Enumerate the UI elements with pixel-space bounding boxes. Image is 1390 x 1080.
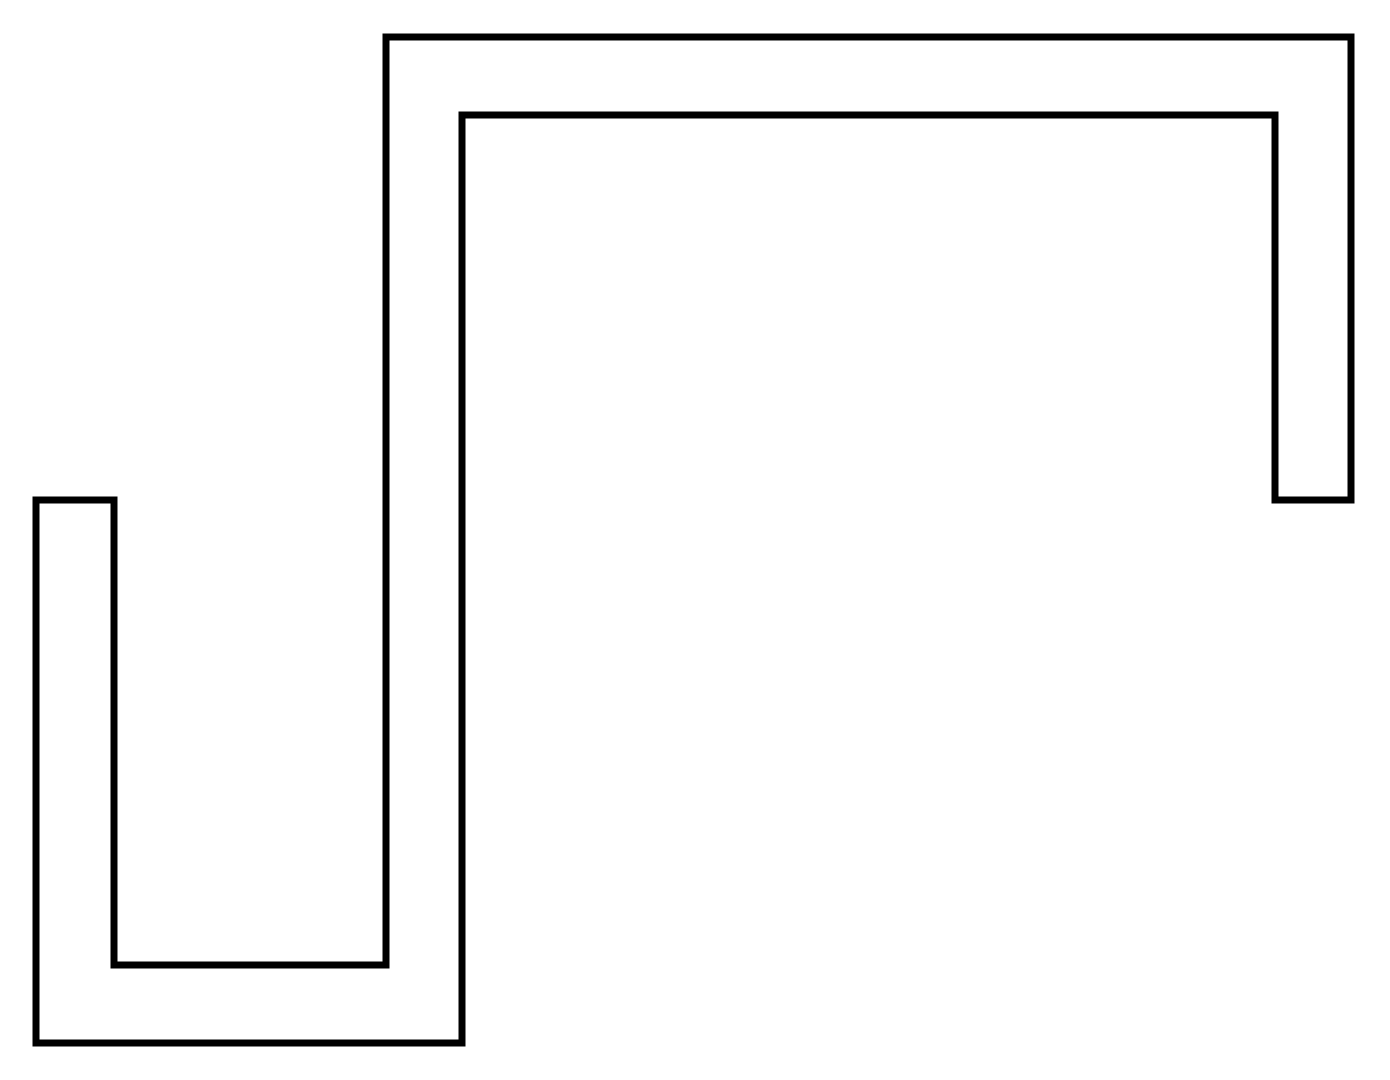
serpentine-outline-figure xyxy=(0,0,1390,1080)
drawing-canvas xyxy=(0,0,1390,1080)
serpentine-outline-polygon xyxy=(36,37,1351,1043)
